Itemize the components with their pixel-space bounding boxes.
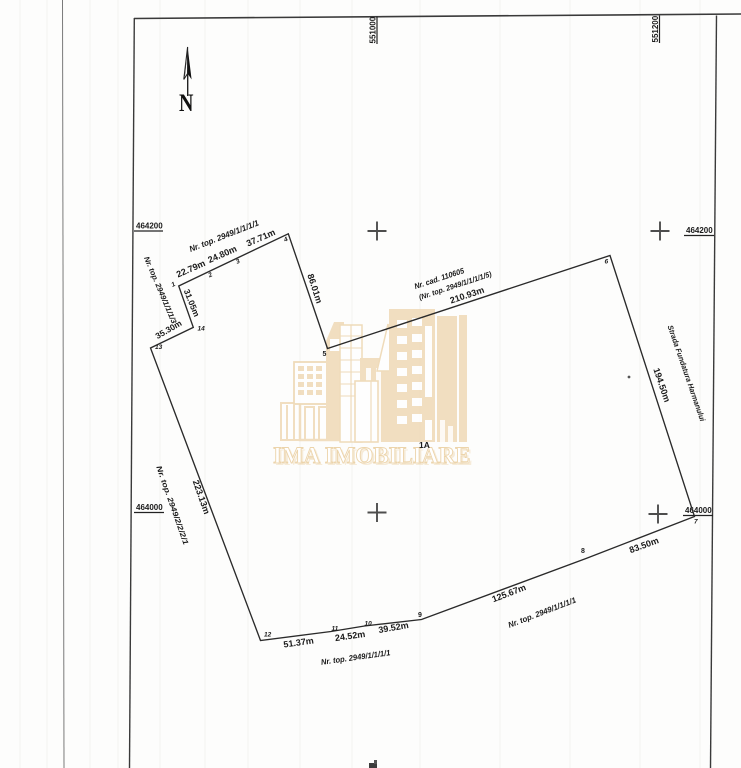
svg-text:14: 14 xyxy=(198,326,206,333)
svg-text:551000: 551000 xyxy=(369,16,378,43)
svg-text:N: N xyxy=(179,89,194,117)
svg-text:464000: 464000 xyxy=(136,503,163,512)
svg-text:464000: 464000 xyxy=(685,506,712,515)
svg-text:9: 9 xyxy=(418,612,422,619)
svg-text:IMA IMOBILIARE: IMA IMOBILIARE xyxy=(273,443,470,468)
svg-text:7: 7 xyxy=(694,519,698,526)
svg-text:5: 5 xyxy=(323,351,327,358)
svg-text:6: 6 xyxy=(605,259,609,266)
svg-text:464200: 464200 xyxy=(136,222,163,231)
svg-text:11: 11 xyxy=(332,626,339,633)
svg-text:10: 10 xyxy=(365,621,373,628)
svg-text:551200: 551200 xyxy=(651,15,660,42)
svg-text:464200: 464200 xyxy=(686,226,713,235)
svg-text:8: 8 xyxy=(581,548,585,555)
svg-text:1A: 1A xyxy=(419,440,430,450)
svg-text:13: 13 xyxy=(155,344,163,351)
svg-text:12: 12 xyxy=(264,632,272,639)
